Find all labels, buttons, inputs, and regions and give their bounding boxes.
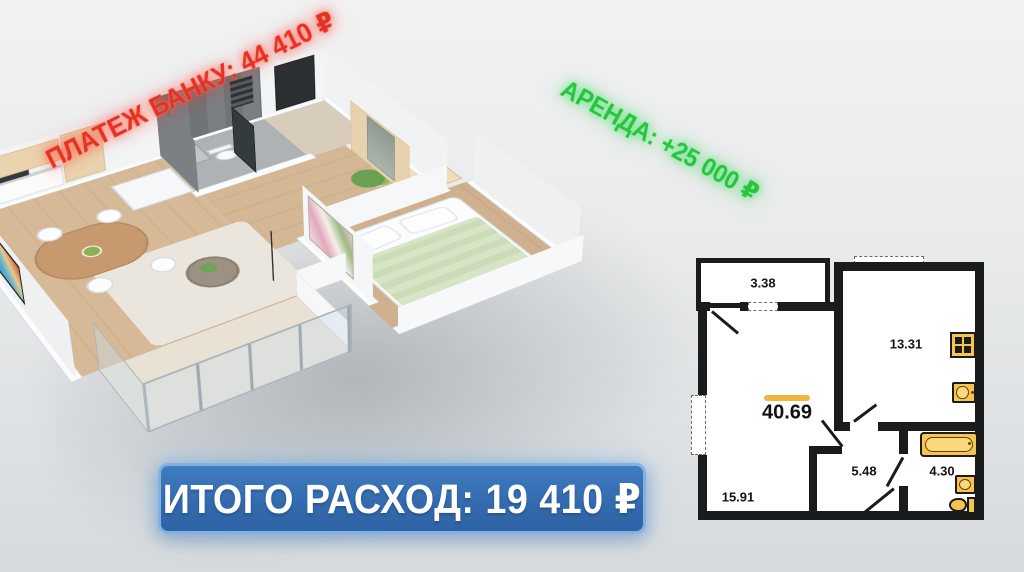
toilet-icon <box>949 497 976 514</box>
plan-wall <box>696 302 710 311</box>
area-label-hallway: 5.48 <box>851 464 876 479</box>
washbasin-icon <box>955 475 976 494</box>
plan-wall <box>878 422 984 431</box>
plan-window <box>748 302 778 311</box>
area-label-balcony: 3.38 <box>750 276 775 291</box>
plan-wall <box>899 426 908 454</box>
plan-wall <box>698 511 984 520</box>
total-expense-text: ИТОГО РАСХОД: 19 410 ₽ <box>163 475 641 523</box>
area-label-living: 15.91 <box>722 490 755 505</box>
area-label-total: 40.69 <box>762 402 812 425</box>
total-area-highlight <box>764 395 810 401</box>
plan-wall <box>740 302 748 311</box>
stove-icon <box>950 332 976 358</box>
plan-wall <box>698 455 707 515</box>
plan-wall <box>698 304 707 395</box>
kitchen-sink-icon <box>952 382 976 403</box>
area-label-bathroom: 4.30 <box>929 464 954 479</box>
plan-wall <box>834 262 984 271</box>
plan-wall <box>975 262 984 520</box>
area-label-kitchen: 13.31 <box>890 337 923 352</box>
plan-window <box>691 395 706 455</box>
total-expense-banner: ИТОГО РАСХОД: 19 410 ₽ <box>158 463 646 534</box>
plan-wall <box>834 422 850 431</box>
floorplan-panel: 3.38 13.31 40.69 5.48 4.30 15.91 <box>688 256 990 528</box>
bathtub-icon <box>920 432 978 457</box>
plan-wall <box>834 262 843 424</box>
thumbnail-stage: 3.38 13.31 40.69 5.48 4.30 15.91 ПЛАТЕЖ … <box>0 0 1024 572</box>
plan-wall <box>809 446 817 515</box>
plan-wall <box>809 446 842 454</box>
plan-wall <box>899 486 908 515</box>
plan-wall <box>778 302 842 311</box>
